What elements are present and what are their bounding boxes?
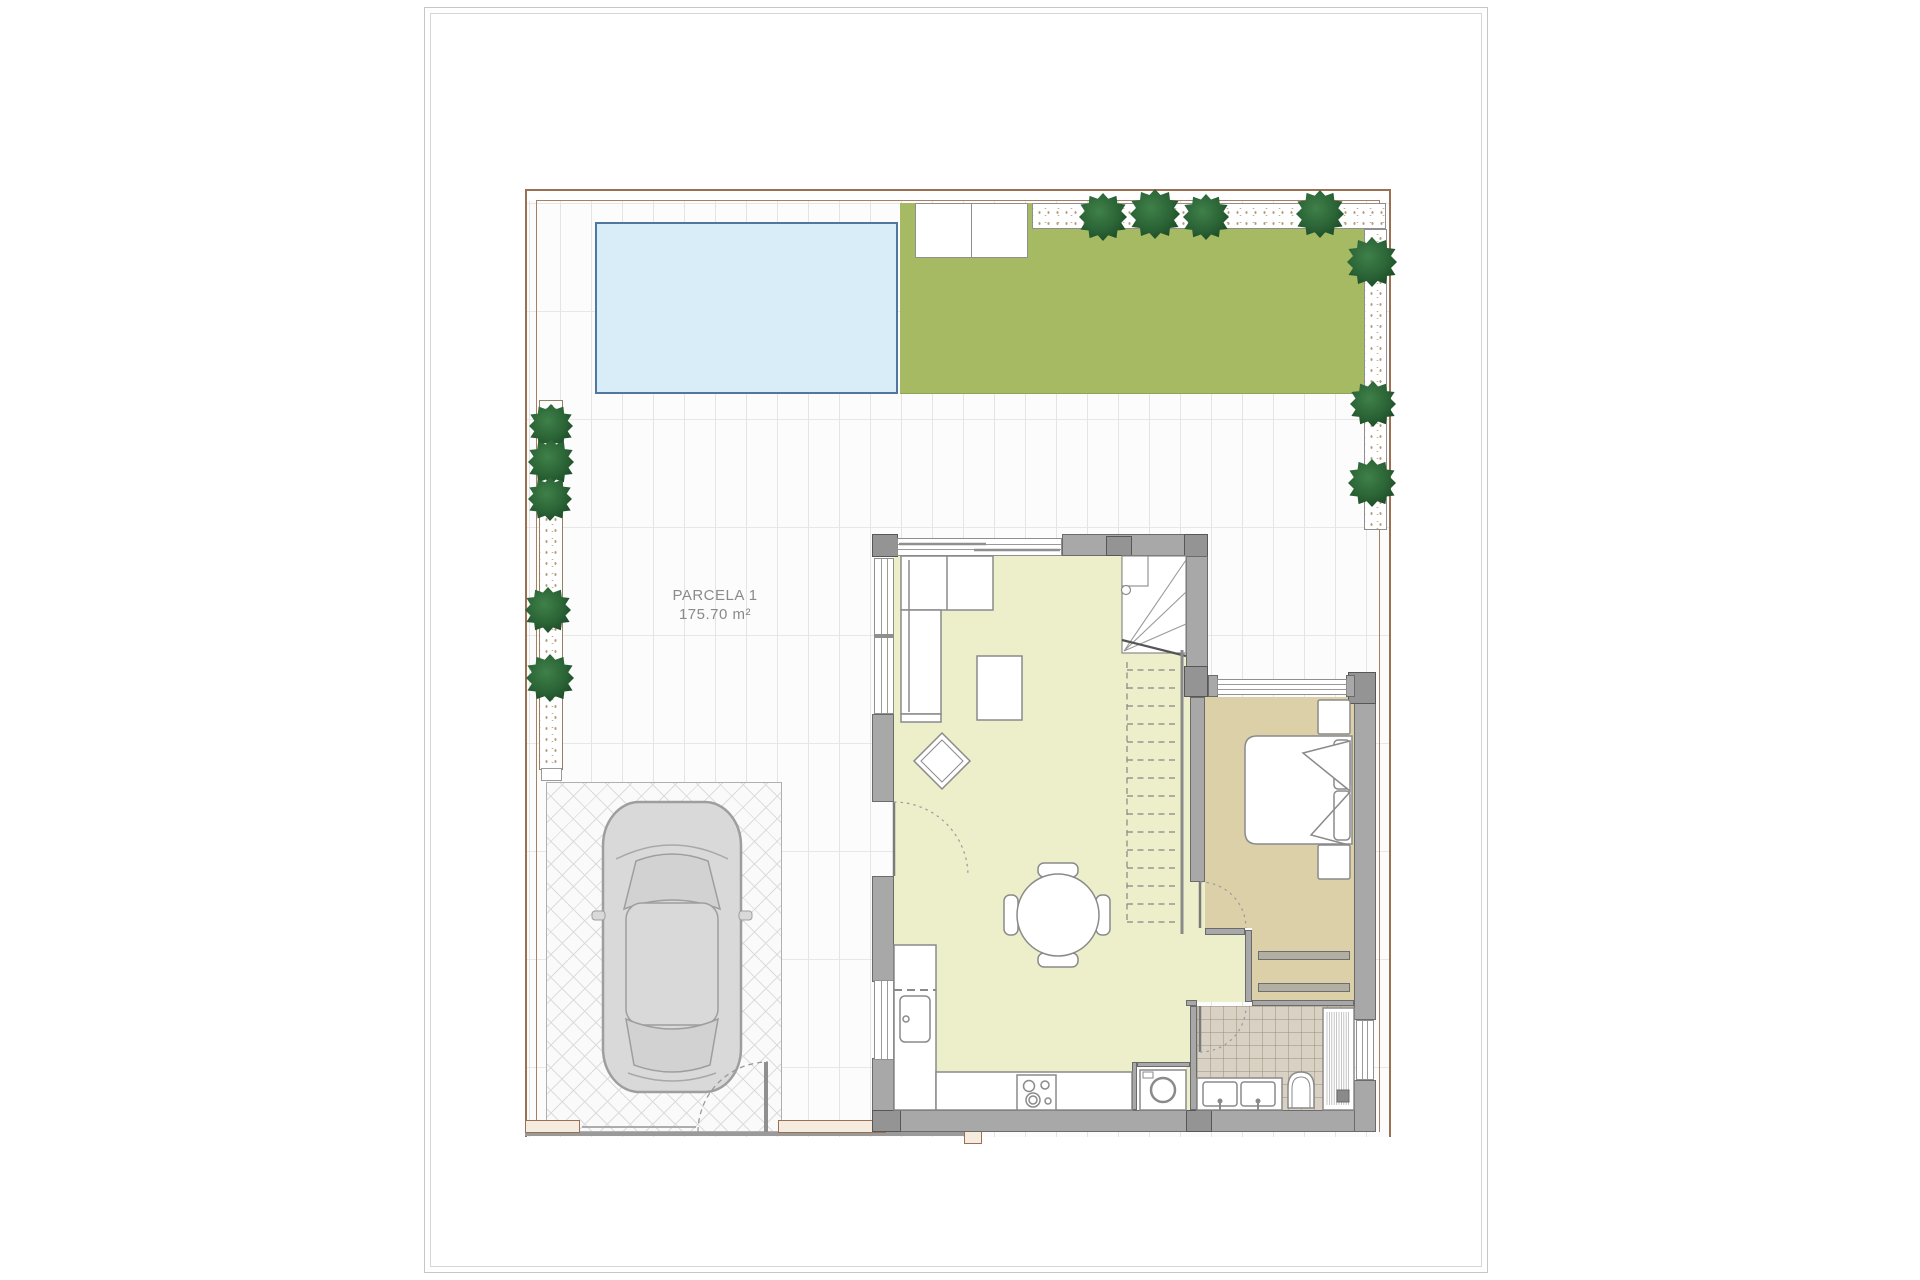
bath-west-wall <box>1190 1006 1197 1110</box>
living-window-mullion <box>874 634 894 638</box>
floor-plan-sheet: PARCELA 1 175.70 m² <box>0 0 1920 1280</box>
column-s-mid <box>1186 1110 1212 1132</box>
west-wall-seg3 <box>872 1058 894 1114</box>
terrace-sliding-door <box>897 538 1062 556</box>
closet-sliding-door-1 <box>1258 951 1350 960</box>
kitchen-window-west <box>874 980 894 1060</box>
column-sw <box>872 1110 901 1132</box>
garden-pergola-right <box>971 203 1028 258</box>
gravel-bed-right <box>1364 229 1387 530</box>
laundry-north-wall <box>1137 1062 1190 1067</box>
planter-end-box <box>541 768 562 781</box>
laundry-stub-west <box>1132 1062 1137 1110</box>
front-wall-left <box>525 1120 580 1133</box>
swimming-pool <box>595 222 898 394</box>
front-fence <box>525 1132 968 1136</box>
column-n-mid <box>1106 536 1132 556</box>
bathroom-window-east <box>1356 1020 1374 1080</box>
gravel-bed-top <box>1032 203 1386 229</box>
west-wall-seg1 <box>872 714 894 802</box>
bedroom-window-north <box>1217 679 1347 695</box>
bathroom-floor <box>1197 1006 1354 1110</box>
driveway-gate <box>582 1126 696 1128</box>
bath-north-wall-right <box>1252 1000 1354 1006</box>
laundry-niche-floor <box>1137 1067 1186 1110</box>
east-wall-upper <box>1354 675 1376 1020</box>
west-wall-seg2 <box>872 876 894 982</box>
bedroom-floor <box>1205 697 1354 928</box>
parcel-area: 175.70 m² <box>615 605 815 624</box>
front-wall-right <box>778 1120 886 1133</box>
south-wall <box>872 1110 1376 1132</box>
column-nw <box>872 534 898 557</box>
living-kitchen-floor <box>894 556 1190 1110</box>
closet-stub-wall <box>1245 930 1252 1002</box>
garden-pergola-left <box>915 203 972 258</box>
bedroom-north-wall-right <box>1346 675 1355 697</box>
east-wall-lower <box>1354 1080 1376 1132</box>
parcel-name: PARCELA 1 <box>615 586 815 605</box>
stair-east-column <box>1184 666 1208 697</box>
gravel-planter-left <box>539 400 563 770</box>
carport-paving <box>546 782 782 1132</box>
closet-sliding-door-2 <box>1258 983 1350 992</box>
parcel-label: PARCELA 1 175.70 m² <box>615 586 815 624</box>
column-ne-stair <box>1184 534 1208 557</box>
bedroom-south-stub <box>1205 928 1245 935</box>
bedroom-west-wall <box>1190 697 1205 882</box>
